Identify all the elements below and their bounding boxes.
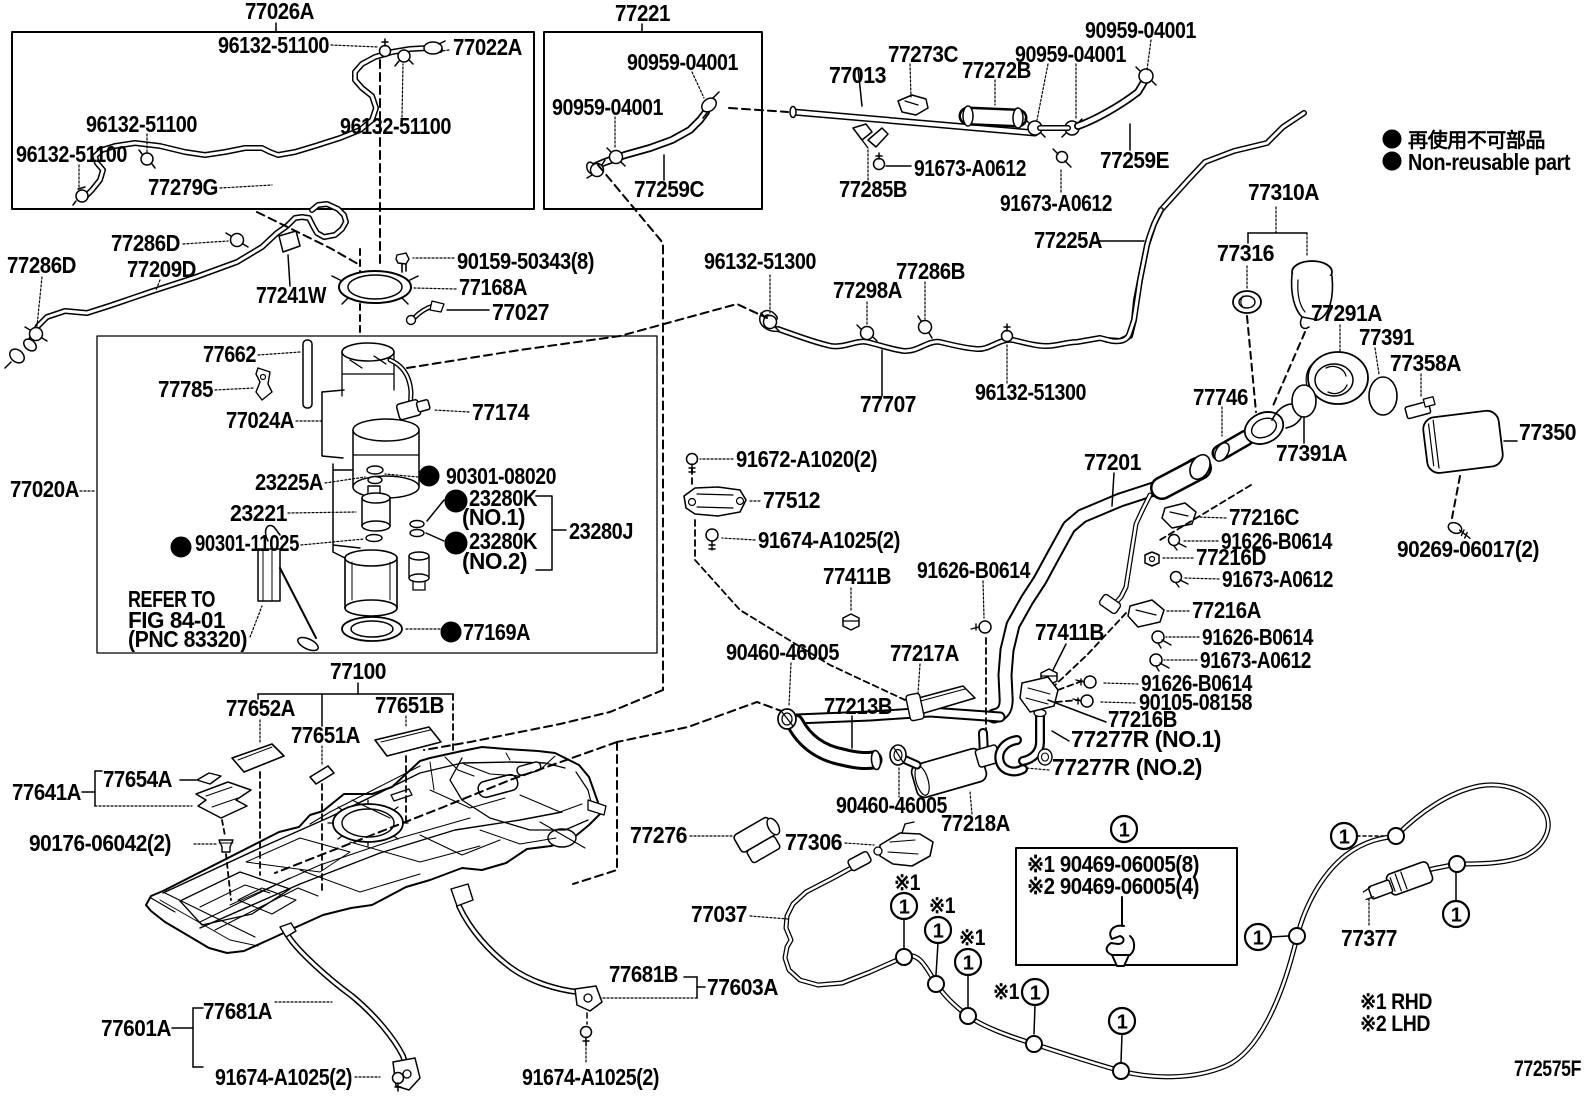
svg-text:96132-51100: 96132-51100: [16, 141, 127, 167]
svg-text:77285B: 77285B: [839, 176, 907, 202]
svg-text:(NO.2): (NO.2): [462, 548, 527, 574]
svg-text:77216C: 77216C: [1229, 504, 1299, 530]
svg-text:91672-A1020(2): 91672-A1020(2): [736, 446, 877, 472]
svg-text:77174: 77174: [472, 399, 530, 425]
svg-text:77024A: 77024A: [226, 407, 294, 433]
svg-text:77209D: 77209D: [127, 256, 196, 282]
svg-text:77020A: 77020A: [10, 476, 79, 502]
svg-text:77169A: 77169A: [463, 619, 530, 645]
svg-text:91674-A1025(2): 91674-A1025(2): [215, 1064, 352, 1090]
svg-text:Non-reusable part: Non-reusable part: [1408, 149, 1571, 175]
svg-text:1: 1: [1253, 928, 1264, 950]
svg-text:77213B: 77213B: [824, 693, 892, 719]
svg-text:1: 1: [933, 921, 944, 943]
svg-text:77681B: 77681B: [609, 961, 678, 987]
svg-text:77259E: 77259E: [1100, 147, 1169, 173]
svg-text:77601A: 77601A: [101, 1015, 171, 1041]
svg-text:77027: 77027: [492, 299, 549, 325]
svg-text:77306: 77306: [785, 829, 842, 855]
svg-text:77377: 77377: [1341, 925, 1397, 951]
svg-text:77022A: 77022A: [453, 34, 522, 60]
svg-text:77168A: 77168A: [459, 274, 527, 300]
svg-text:77218A: 77218A: [941, 810, 1010, 836]
svg-text:77279G: 77279G: [148, 174, 218, 200]
svg-text:91673-A0612: 91673-A0612: [1222, 566, 1333, 592]
svg-text:23225A: 23225A: [255, 469, 323, 495]
svg-text:※2 90469-06005(4): ※2 90469-06005(4): [1027, 873, 1199, 899]
svg-text:90959-04001: 90959-04001: [1085, 17, 1197, 43]
svg-text:77651A: 77651A: [291, 722, 360, 748]
svg-text:1: 1: [1117, 1012, 1128, 1034]
svg-text:77013: 77013: [829, 62, 886, 88]
svg-text:1: 1: [1030, 983, 1041, 1005]
svg-text:77785: 77785: [158, 376, 214, 402]
svg-text:90460-46005: 90460-46005: [726, 639, 840, 665]
svg-text:96132-51300: 96132-51300: [975, 379, 1086, 405]
svg-text:77512: 77512: [763, 487, 820, 513]
svg-text:77225A: 77225A: [1034, 227, 1102, 253]
svg-text:77391A: 77391A: [1276, 440, 1347, 466]
svg-text:90959-04001: 90959-04001: [552, 94, 664, 120]
svg-text:77291A: 77291A: [1311, 300, 1382, 326]
svg-text:(NO.1): (NO.1): [462, 504, 525, 530]
svg-text:1: 1: [1451, 905, 1462, 927]
svg-text:77654A: 77654A: [103, 766, 172, 792]
svg-text:77411B: 77411B: [823, 563, 891, 589]
svg-text:91674-A1025(2): 91674-A1025(2): [522, 1064, 659, 1090]
svg-text:772575F: 772575F: [1514, 1056, 1581, 1081]
svg-text:77201: 77201: [1084, 449, 1142, 475]
svg-text:77350: 77350: [1519, 419, 1576, 445]
svg-text:77026A: 77026A: [245, 0, 314, 24]
svg-text:91673-A0612: 91673-A0612: [914, 155, 1026, 181]
svg-text:77241W: 77241W: [256, 282, 327, 308]
svg-text:90176-06042(2): 90176-06042(2): [29, 830, 171, 856]
svg-text:77662: 77662: [203, 341, 256, 367]
svg-text:91626-B0614: 91626-B0614: [917, 557, 1031, 583]
svg-text:1: 1: [899, 897, 910, 919]
svg-text:※1: ※1: [929, 893, 955, 918]
svg-text:77746: 77746: [1193, 384, 1248, 410]
svg-text:77286D: 77286D: [7, 252, 76, 278]
svg-text:90460-46005: 90460-46005: [836, 792, 948, 818]
svg-text:77681A: 77681A: [203, 998, 272, 1024]
svg-text:77037: 77037: [691, 901, 747, 927]
svg-text:77277R (NO.1): 77277R (NO.1): [1071, 726, 1221, 752]
svg-text:77100: 77100: [330, 658, 386, 684]
svg-text:96132-51100: 96132-51100: [86, 111, 197, 137]
svg-text:77391: 77391: [1359, 324, 1415, 350]
svg-text:1: 1: [1339, 827, 1350, 849]
svg-text:77286B: 77286B: [896, 258, 965, 284]
svg-text:23280J: 23280J: [569, 518, 633, 544]
svg-text:77276: 77276: [630, 822, 687, 848]
svg-text:90159-50343(8): 90159-50343(8): [457, 248, 594, 274]
svg-text:77651B: 77651B: [375, 692, 444, 718]
svg-text:77259C: 77259C: [634, 176, 704, 202]
svg-text:77273C: 77273C: [888, 41, 958, 67]
svg-text:91674-A1025(2): 91674-A1025(2): [758, 527, 900, 553]
svg-text:77603A: 77603A: [707, 974, 778, 1000]
svg-text:77652A: 77652A: [226, 695, 295, 721]
svg-text:77216A: 77216A: [1192, 597, 1261, 623]
svg-text:(PNC 83320): (PNC 83320): [128, 626, 247, 652]
svg-text:77217A: 77217A: [890, 640, 959, 666]
svg-text:1: 1: [1119, 820, 1130, 842]
svg-text:90959-04001: 90959-04001: [1015, 41, 1127, 67]
svg-text:77221: 77221: [615, 0, 671, 26]
svg-text:※1: ※1: [894, 870, 920, 895]
svg-text:77310A: 77310A: [1248, 179, 1319, 205]
svg-text:※1: ※1: [959, 925, 985, 950]
svg-text:※1: ※1: [993, 979, 1019, 1004]
svg-text:77707: 77707: [860, 391, 916, 417]
svg-text:※2 LHD: ※2 LHD: [1360, 1011, 1430, 1036]
svg-text:77358A: 77358A: [1390, 350, 1461, 376]
svg-text:90301-11025: 90301-11025: [195, 530, 300, 556]
svg-text:77411B: 77411B: [1035, 619, 1104, 645]
svg-text:77277R (NO.2): 77277R (NO.2): [1052, 754, 1202, 780]
svg-text:96132-51100: 96132-51100: [340, 113, 451, 139]
svg-text:77641A: 77641A: [12, 779, 81, 805]
svg-text:91673-A0612: 91673-A0612: [1000, 190, 1112, 216]
svg-text:23221: 23221: [230, 500, 288, 526]
svg-text:96132-51100: 96132-51100: [218, 32, 329, 58]
svg-text:90269-06017(2): 90269-06017(2): [1397, 536, 1539, 562]
svg-text:77298A: 77298A: [833, 277, 902, 303]
svg-text:90959-04001: 90959-04001: [627, 49, 739, 75]
svg-text:77316: 77316: [1217, 240, 1274, 266]
svg-text:96132-51300: 96132-51300: [704, 248, 816, 274]
svg-text:77286D: 77286D: [111, 230, 180, 256]
svg-text:1: 1: [963, 953, 974, 975]
